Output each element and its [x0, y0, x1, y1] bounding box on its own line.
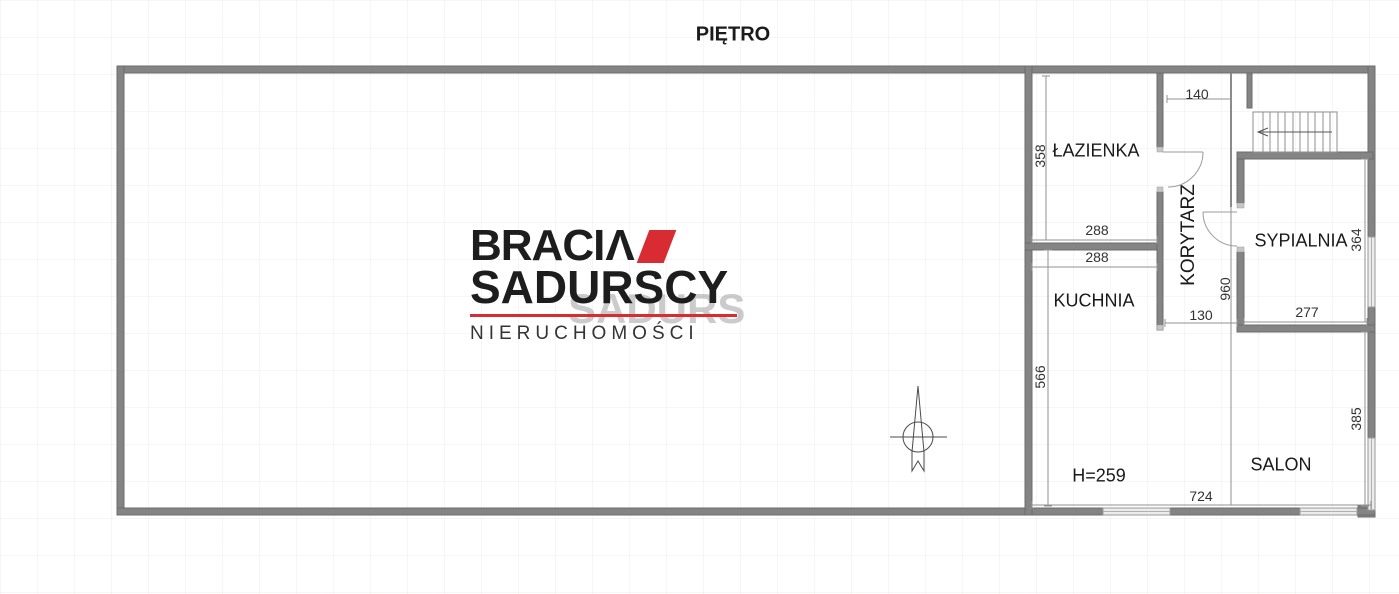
wall-bottom-seg2: [1170, 508, 1300, 515]
logo-red-rule: [470, 314, 737, 317]
room-label-bathroom: ŁAZIENKA: [1052, 141, 1139, 162]
window-living-right: [1368, 438, 1375, 510]
wall-bedroom-top: [1237, 152, 1373, 159]
dimension-bathroom-depth: 358: [1032, 144, 1048, 167]
room-label-living-room: SALON: [1250, 455, 1311, 476]
wall-left: [117, 66, 124, 515]
outer-walls: [117, 66, 1375, 517]
logo-text-sadurscy: SADURSCY: [470, 267, 744, 307]
stair-direction-arrow: [1258, 128, 1332, 136]
doors: [1163, 152, 1237, 246]
dimension-living-room-width: 724: [1189, 488, 1212, 504]
wall-bedroom-left-lower: [1237, 252, 1244, 325]
wall-corridor-left-upper: [1157, 73, 1163, 147]
logo-brand-line1: BRACIΛ: [470, 227, 744, 265]
room-label-kitchen: KUCHNIA: [1053, 291, 1134, 312]
logo-red-parallelogram-icon: [636, 230, 676, 263]
room-label-bedroom: SYPIALNIA: [1254, 231, 1347, 252]
door-bedroom: [1203, 212, 1237, 246]
dimension-bedroom-depth: 364: [1348, 228, 1364, 251]
dimension-kitchen-width: 288: [1085, 249, 1108, 265]
window-bottom-right: [1300, 508, 1357, 515]
wall-corridor-left-lower: [1157, 192, 1163, 330]
logo-stylized-a: Λ: [605, 229, 634, 263]
agency-watermark-logo: SADURSCY BRACIΛ SADURSCY NIERUCHOMOŚCI: [470, 227, 744, 347]
dimension-corridor-width: 140: [1185, 86, 1208, 102]
logo-tagline: NIERUCHOMOŚCI: [470, 323, 744, 345]
wall-bottom-seg1: [1032, 508, 1103, 515]
window-bedroom-right: [1368, 237, 1375, 307]
dimension-kitchen-depth: 566: [1032, 365, 1048, 388]
logo-text-bracia: BRACI: [470, 229, 604, 263]
dimension-corridor-passage: 130: [1189, 307, 1212, 323]
room-label-corridor: KORYTARZ: [1178, 184, 1200, 286]
window-bottom-left: [1103, 508, 1170, 515]
ceiling-height-note: H=259: [1072, 466, 1126, 487]
floor-title: PIĘTRO: [696, 24, 770, 47]
dimension-corridor-length: 960: [1217, 277, 1233, 300]
wall-main-divider: [1025, 66, 1032, 515]
wall-stair-door-jamb: [1247, 73, 1252, 108]
wall-top: [117, 66, 1375, 73]
dimension-bathroom-width: 288: [1085, 222, 1108, 238]
door-bathroom: [1163, 152, 1203, 187]
wall-bedroom-bottom: [1237, 325, 1375, 332]
north-arrow-icon: [890, 386, 947, 471]
floor-plan-canvas: PIĘTRO ŁAZIENKA KUCHNIA KORYTARZ SYPIALN…: [0, 0, 1399, 594]
wall-bedroom-left-upper: [1237, 159, 1244, 203]
wall-bottom-left-section: [117, 508, 1032, 515]
dimension-bedroom-width: 277: [1295, 304, 1318, 320]
dimension-living-room-depth: 385: [1348, 407, 1364, 430]
